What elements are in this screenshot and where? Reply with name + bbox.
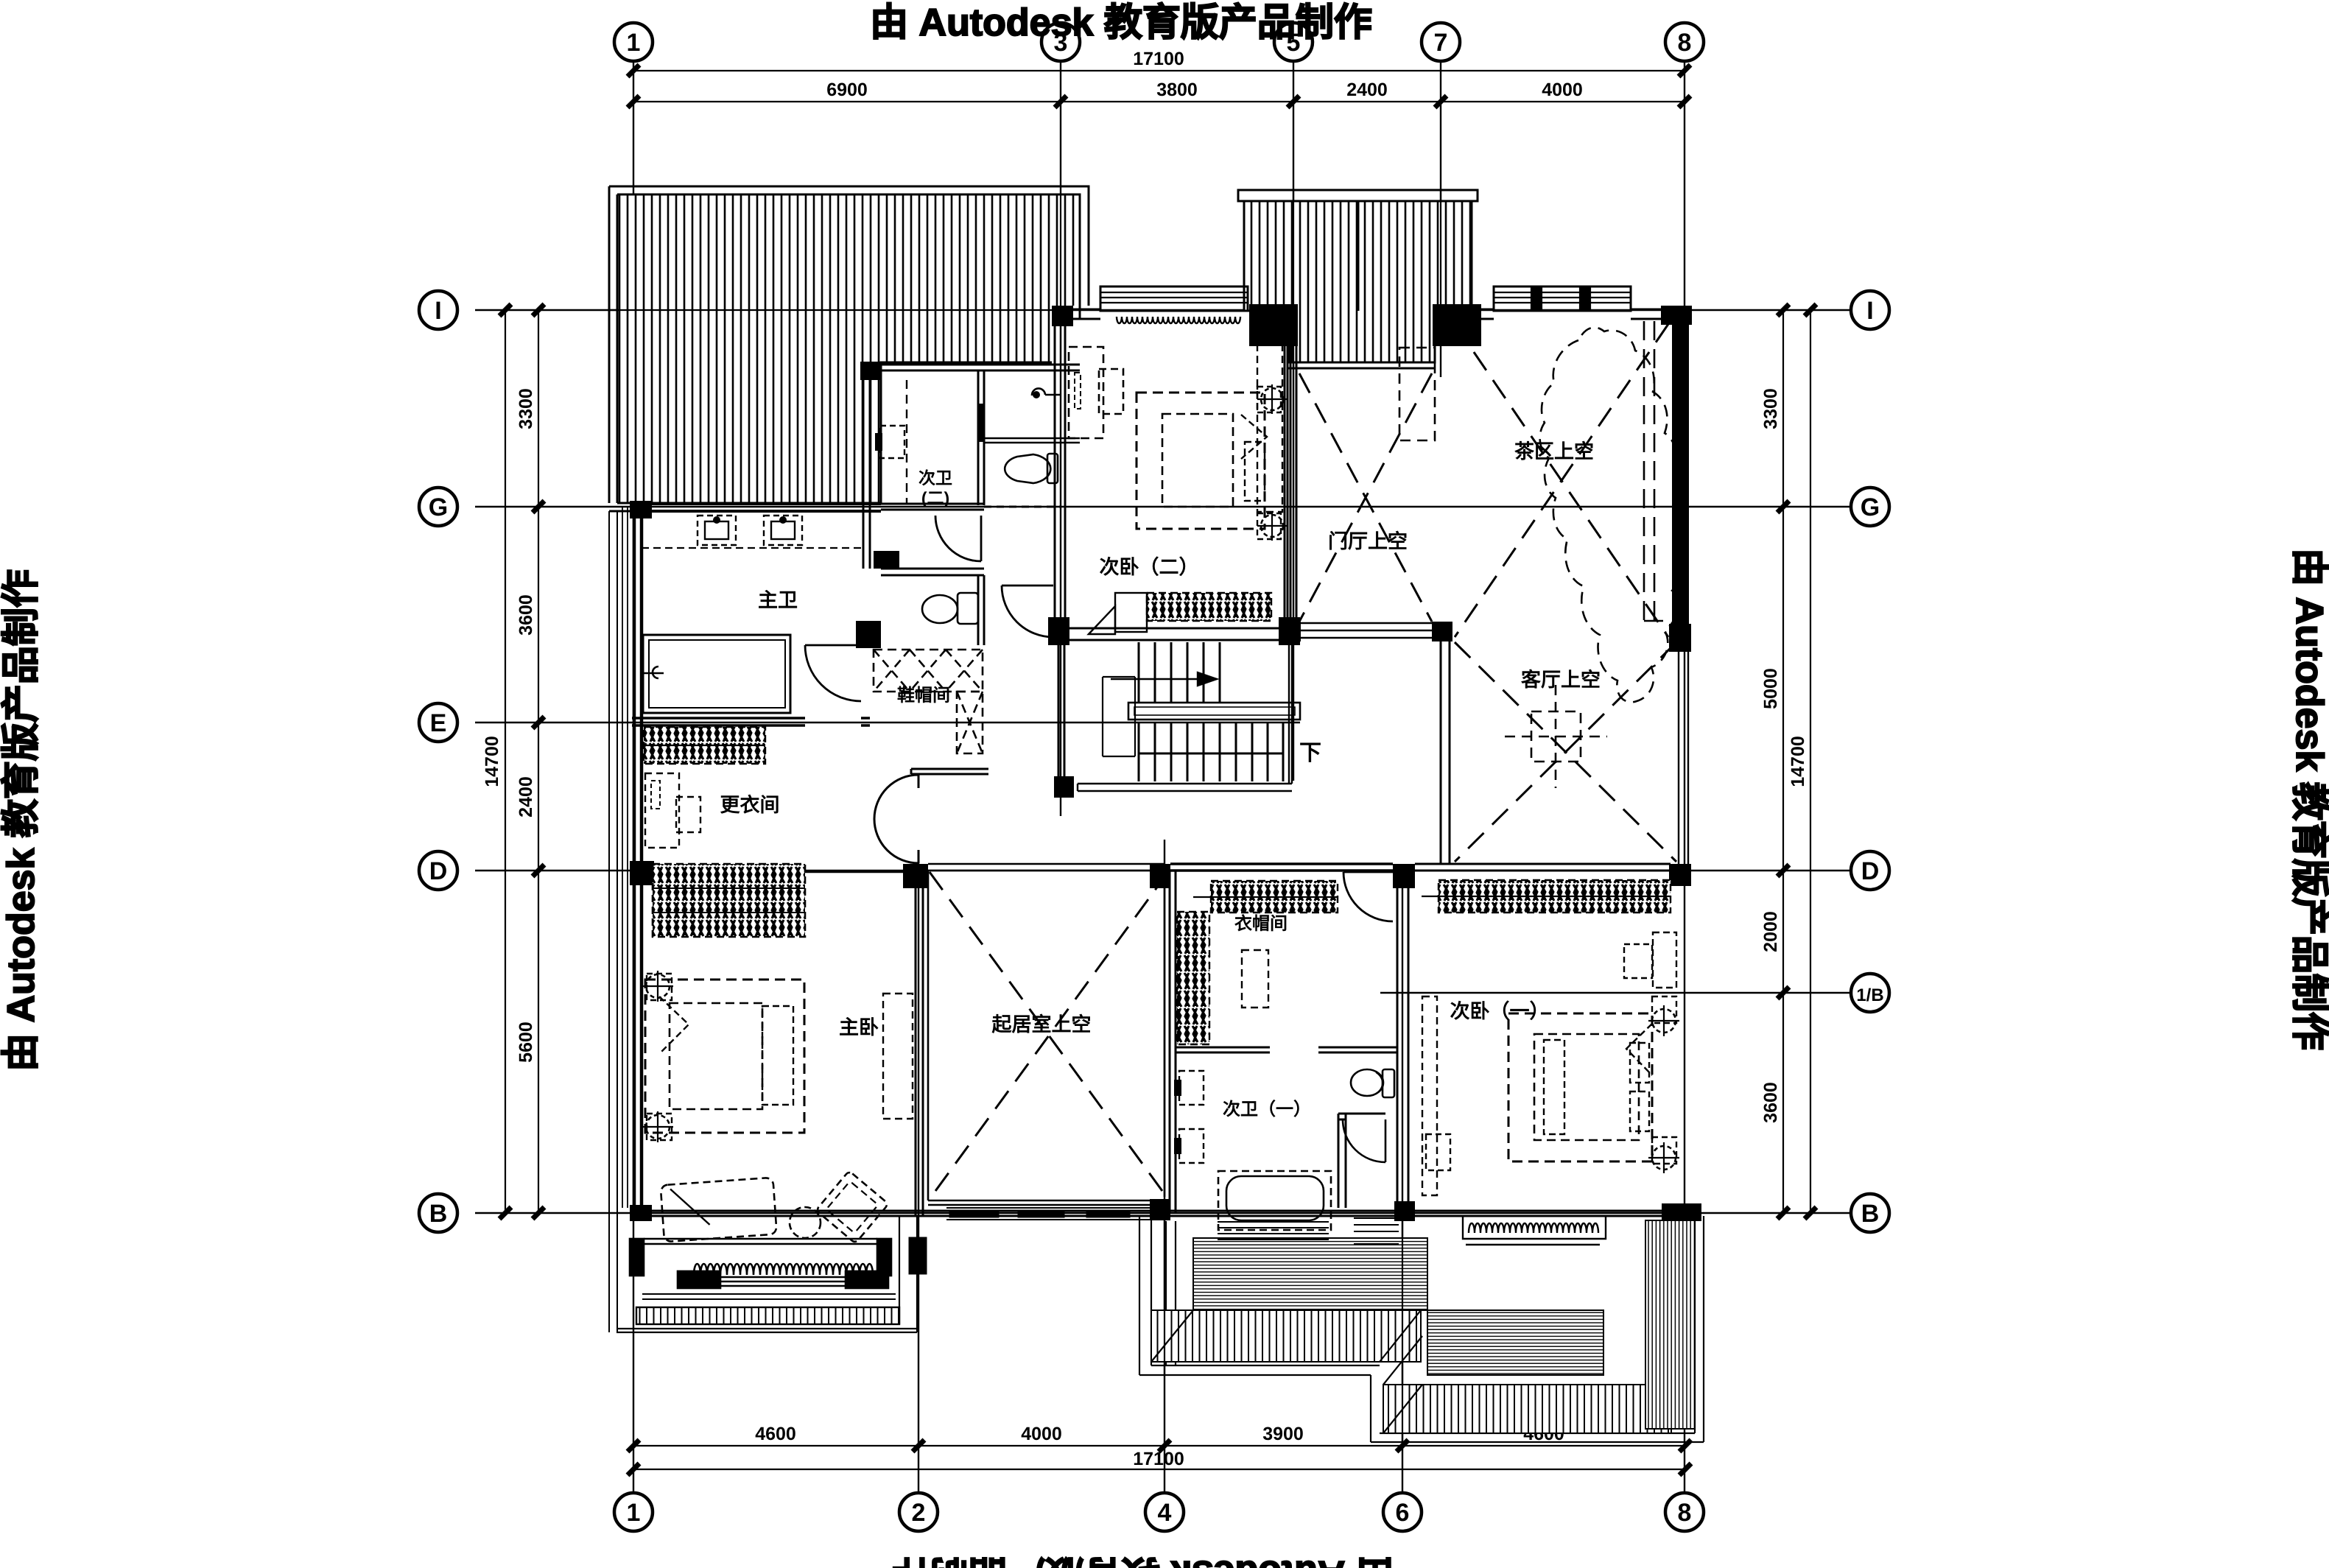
svg-text:D: D bbox=[429, 857, 448, 885]
svg-text:1/B: 1/B bbox=[1856, 985, 1883, 1005]
svg-text:17100: 17100 bbox=[1133, 49, 1184, 69]
svg-text:5600: 5600 bbox=[516, 1022, 536, 1063]
svg-text:茶区上空: 茶区上空 bbox=[1514, 440, 1594, 463]
svg-text:次卧（一）: 次卧（一） bbox=[1450, 1000, 1550, 1022]
svg-text:G: G bbox=[1861, 493, 1880, 521]
svg-text:6900: 6900 bbox=[826, 80, 868, 100]
svg-text:客厅上空: 客厅上空 bbox=[1521, 669, 1601, 691]
svg-text:G: G bbox=[429, 493, 448, 521]
svg-text:衣帽间: 衣帽间 bbox=[1234, 914, 1288, 934]
svg-text:3300: 3300 bbox=[1760, 388, 1781, 429]
svg-text:门厅上空: 门厅上空 bbox=[1328, 530, 1408, 552]
svg-text:2000: 2000 bbox=[1760, 911, 1781, 952]
svg-text:7: 7 bbox=[1434, 29, 1448, 57]
svg-text:17100: 17100 bbox=[1133, 1449, 1184, 1469]
svg-text:4: 4 bbox=[1158, 1499, 1172, 1527]
svg-text:由 Autodesk 教育版产品制作: 由 Autodesk 教育版产品制作 bbox=[0, 569, 43, 1072]
svg-text:14700: 14700 bbox=[1788, 736, 1808, 787]
svg-text:更衣间: 更衣间 bbox=[720, 794, 780, 816]
svg-text:4000: 4000 bbox=[1021, 1424, 1062, 1444]
svg-text:E: E bbox=[430, 709, 447, 737]
svg-text:3300: 3300 bbox=[516, 388, 536, 429]
svg-text:3600: 3600 bbox=[1760, 1082, 1781, 1123]
svg-text:主卫: 主卫 bbox=[758, 589, 798, 611]
svg-text:I: I bbox=[1866, 297, 1873, 325]
svg-text:(二): (二) bbox=[921, 488, 949, 507]
svg-text:2400: 2400 bbox=[1346, 80, 1388, 100]
svg-text:B: B bbox=[1861, 1200, 1880, 1228]
svg-text:5000: 5000 bbox=[1760, 668, 1781, 709]
svg-text:D: D bbox=[1861, 857, 1880, 885]
svg-text:8: 8 bbox=[1678, 1499, 1692, 1527]
svg-text:1: 1 bbox=[627, 29, 641, 57]
svg-text:5: 5 bbox=[1287, 29, 1301, 57]
svg-text:3800: 3800 bbox=[1156, 80, 1198, 100]
svg-text:次卫（一）: 次卫（一） bbox=[1223, 1099, 1311, 1119]
svg-text:8: 8 bbox=[1678, 29, 1692, 57]
svg-text:次卧（二）: 次卧（二） bbox=[1100, 556, 1199, 578]
svg-text:14700: 14700 bbox=[482, 736, 502, 787]
svg-text:起居室上空: 起居室上空 bbox=[992, 1013, 1092, 1036]
svg-text:1: 1 bbox=[627, 1499, 641, 1527]
svg-text:3600: 3600 bbox=[516, 594, 536, 636]
svg-text:3900: 3900 bbox=[1262, 1424, 1304, 1444]
svg-text:主卧: 主卧 bbox=[839, 1016, 879, 1038]
svg-text:6: 6 bbox=[1396, 1499, 1410, 1527]
svg-text:I: I bbox=[435, 297, 441, 325]
svg-text:2: 2 bbox=[912, 1499, 926, 1527]
svg-text:由 Autodesk 教育版产品制作: 由 Autodesk 教育版产品制作 bbox=[2288, 548, 2329, 1050]
svg-text:B: B bbox=[429, 1200, 448, 1228]
svg-text:下: 下 bbox=[1299, 741, 1321, 765]
svg-text:3: 3 bbox=[1054, 29, 1068, 57]
svg-text:2400: 2400 bbox=[516, 776, 536, 818]
svg-text:由 Autodesk 教育版产品制作: 由 Autodesk 教育版产品制作 bbox=[892, 1553, 1394, 1568]
svg-text:鞋帽间: 鞋帽间 bbox=[897, 686, 950, 706]
svg-text:次卫: 次卫 bbox=[918, 468, 952, 488]
svg-text:4600: 4600 bbox=[755, 1424, 796, 1444]
svg-text:4000: 4000 bbox=[1542, 80, 1583, 100]
